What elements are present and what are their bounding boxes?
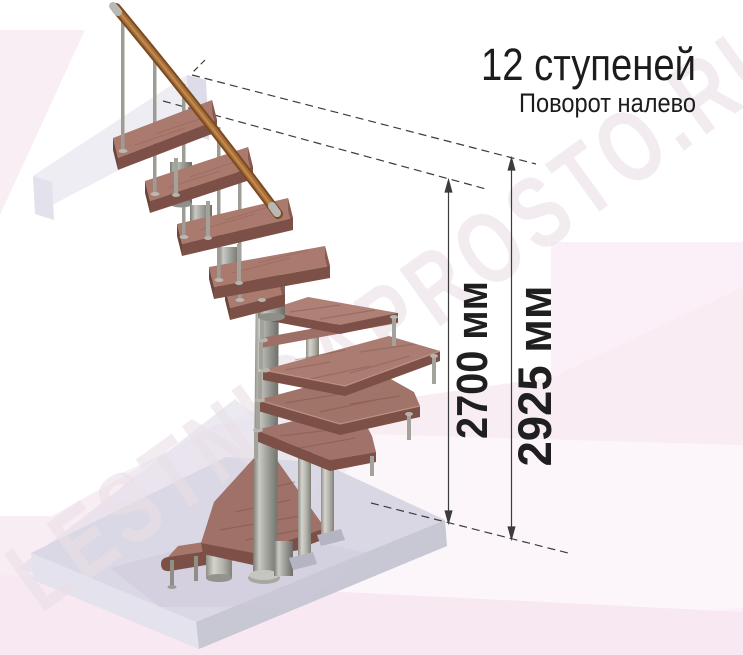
svg-text:2925 мм: 2925 мм <box>508 286 561 467</box>
svg-text:Поворот налево: Поворот налево <box>519 88 696 118</box>
svg-text:12 ступеней: 12 ступеней <box>481 39 696 90</box>
svg-text:2700 мм: 2700 мм <box>448 281 497 439</box>
